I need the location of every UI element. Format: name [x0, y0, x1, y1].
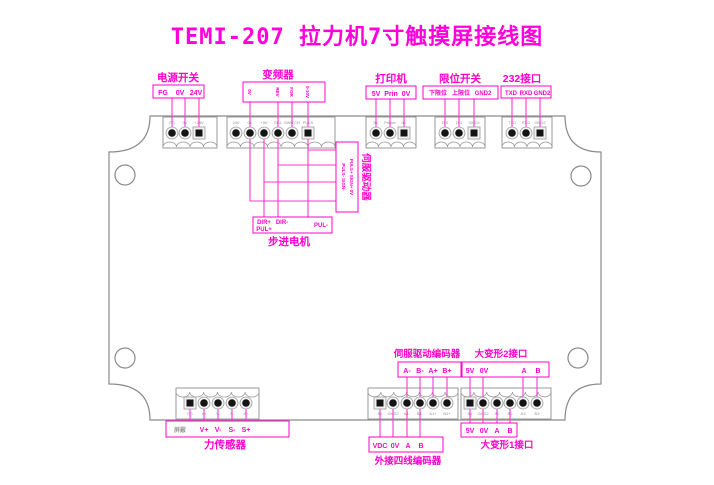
- encoder-strip-label: A1+: [429, 411, 437, 416]
- section-deform2: 大变形2接口 5V 0V A B: [461, 348, 549, 377]
- section-stepper-motor: DIR+ PUL+ DIR- PUL- 步进电机: [253, 217, 332, 248]
- deform1-title: 大变形1接口: [481, 439, 534, 451]
- rs232-title: 232接口: [503, 72, 542, 85]
- printer-pin-label: Prin: [384, 91, 398, 98]
- section-force-sensor: 屏蔽 V+ V- S- S+ 力传感器: [166, 421, 289, 451]
- deform1-pin-label: 5V: [466, 428, 475, 435]
- section-inverter: 变频器 0V REV FOR 0-10V: [243, 68, 325, 102]
- section-power-switch: 电源开关 FG 0V 24V: [153, 71, 204, 98]
- stepper-pin-label: DIR+: [257, 220, 271, 226]
- servo-driver-pins-1: PULS- SIGN-: [341, 163, 346, 191]
- deform1-pin-label: 0V: [480, 428, 489, 435]
- servo-encoder-pin-label: A+: [428, 368, 437, 375]
- limit-pin-label: 下限位: [429, 89, 447, 97]
- terminal-pins: [166, 127, 546, 409]
- deform1-pin-label: A: [494, 428, 499, 435]
- power-pin-label: 0V: [176, 90, 185, 97]
- deform2-pin-label: B: [535, 368, 540, 375]
- servo-encoder-pin-label: B+: [442, 368, 451, 375]
- servo-encoder-title: 伺服驱动编码器: [393, 348, 461, 360]
- servo-encoder-pin-label: B-: [416, 368, 424, 375]
- power-pin-label: FG: [158, 90, 168, 97]
- force-pin-label: S-: [229, 427, 237, 434]
- deform2-pin-label: 0V: [480, 368, 489, 375]
- section-printer: 打印机 5V Prin 0V: [366, 72, 416, 99]
- inverter-pin-label: 0V: [247, 89, 252, 95]
- force-pin-label: V+: [200, 427, 209, 434]
- inverter-strip-label: +5V: [260, 120, 268, 125]
- section-limit-switch: 限位开关 下限位 上限位 GND2: [423, 72, 498, 99]
- mounting-hole-bottom-right: [568, 348, 588, 368]
- servo-driver-title: 伺服驱动器: [360, 152, 372, 201]
- section-servo-encoder: 伺服驱动编码器 A- B- A+ B+: [393, 348, 462, 377]
- deform2-pin-label: 5V: [466, 368, 475, 375]
- inverter-pin-label: FOR: [289, 87, 294, 97]
- servo-driver-pins-2: PULS+ SIGN+ 0V: [349, 159, 354, 195]
- printer-title: 打印机: [375, 72, 407, 85]
- deform1-pin-label: B: [507, 428, 512, 435]
- stepper-pin-label: PUL+: [256, 227, 272, 233]
- stepper-pin-label: DIR-: [276, 220, 288, 226]
- mounting-hole-top-right: [571, 166, 591, 186]
- deform2-pin-label: A: [521, 368, 526, 375]
- power-pin-label: 24V: [190, 90, 203, 97]
- limit-pin-label: GND2: [475, 91, 492, 97]
- ext-encoder-pin-label: 0V: [391, 443, 400, 450]
- wires: [172, 98, 540, 437]
- power-title: 电源开关: [157, 71, 199, 84]
- wiring-diagram-page: TEMI-207 拉力机7寸触摸屏接线图 FG: [0, 0, 714, 485]
- servo-encoder-pin-label: A-: [403, 368, 411, 375]
- inverter-strip-label: 24V: [232, 120, 239, 125]
- rs232-pin-label: RXD: [520, 91, 533, 97]
- deform-strip-label: A3: [521, 411, 527, 416]
- stepper-pin-label: PUL-: [314, 223, 328, 229]
- printer-pin-label: 5V: [372, 91, 381, 98]
- ext-encoder-pin-label: VDC: [373, 443, 388, 450]
- inverter-pin-label: 0-10V: [305, 86, 310, 98]
- inverter-title: 变频器: [262, 68, 294, 81]
- mounting-hole-top-left: [115, 165, 135, 185]
- rs232-pin-label: GND2: [534, 91, 551, 97]
- force-pin-label: S+: [242, 427, 251, 434]
- force-title: 力传感器: [204, 438, 246, 451]
- wiring-diagram-canvas: TEMI-207 拉力机7寸触摸屏接线图 FG: [0, 0, 714, 485]
- stepper-title: 步进电机: [268, 235, 310, 248]
- page-title: TEMI-207 拉力机7寸触摸屏接线图: [171, 24, 543, 50]
- section-ext-encoder: VDC 0V A B 外接四线编码器: [369, 437, 443, 467]
- deform-strip-label: B3: [535, 411, 541, 416]
- pcb-board-outline: [109, 116, 601, 420]
- ext-encoder-pin-label: A: [405, 443, 410, 450]
- deform2-title: 大变形2接口: [475, 348, 528, 360]
- board-edge: [109, 116, 601, 420]
- inverter-pin-box: [243, 82, 325, 102]
- printer-pin-label: 0V: [402, 91, 411, 98]
- mounting-hole-bottom-left: [115, 348, 135, 368]
- section-rs232: 232接口 TXD RXD GND2: [501, 72, 551, 98]
- rs232-pin-label: TXD: [505, 91, 518, 97]
- force-pin-label: V-: [215, 427, 222, 434]
- limit-title: 限位开关: [439, 72, 481, 85]
- force-pin-label: 屏蔽: [173, 426, 187, 434]
- inverter-pin-label: REV: [275, 87, 280, 96]
- ext-encoder-title: 外接四线编码器: [374, 455, 442, 467]
- limit-pin-label: 上限位: [452, 89, 470, 97]
- section-deform1: 5V 0V A B 大变形1接口: [461, 423, 533, 451]
- ext-encoder-pin-label: B: [418, 443, 423, 450]
- section-servo-driver: PULS- SIGN- PULS+ SIGN+ 0V 伺服驱动器: [336, 142, 372, 212]
- encoder-strip-label: B1+: [443, 411, 451, 416]
